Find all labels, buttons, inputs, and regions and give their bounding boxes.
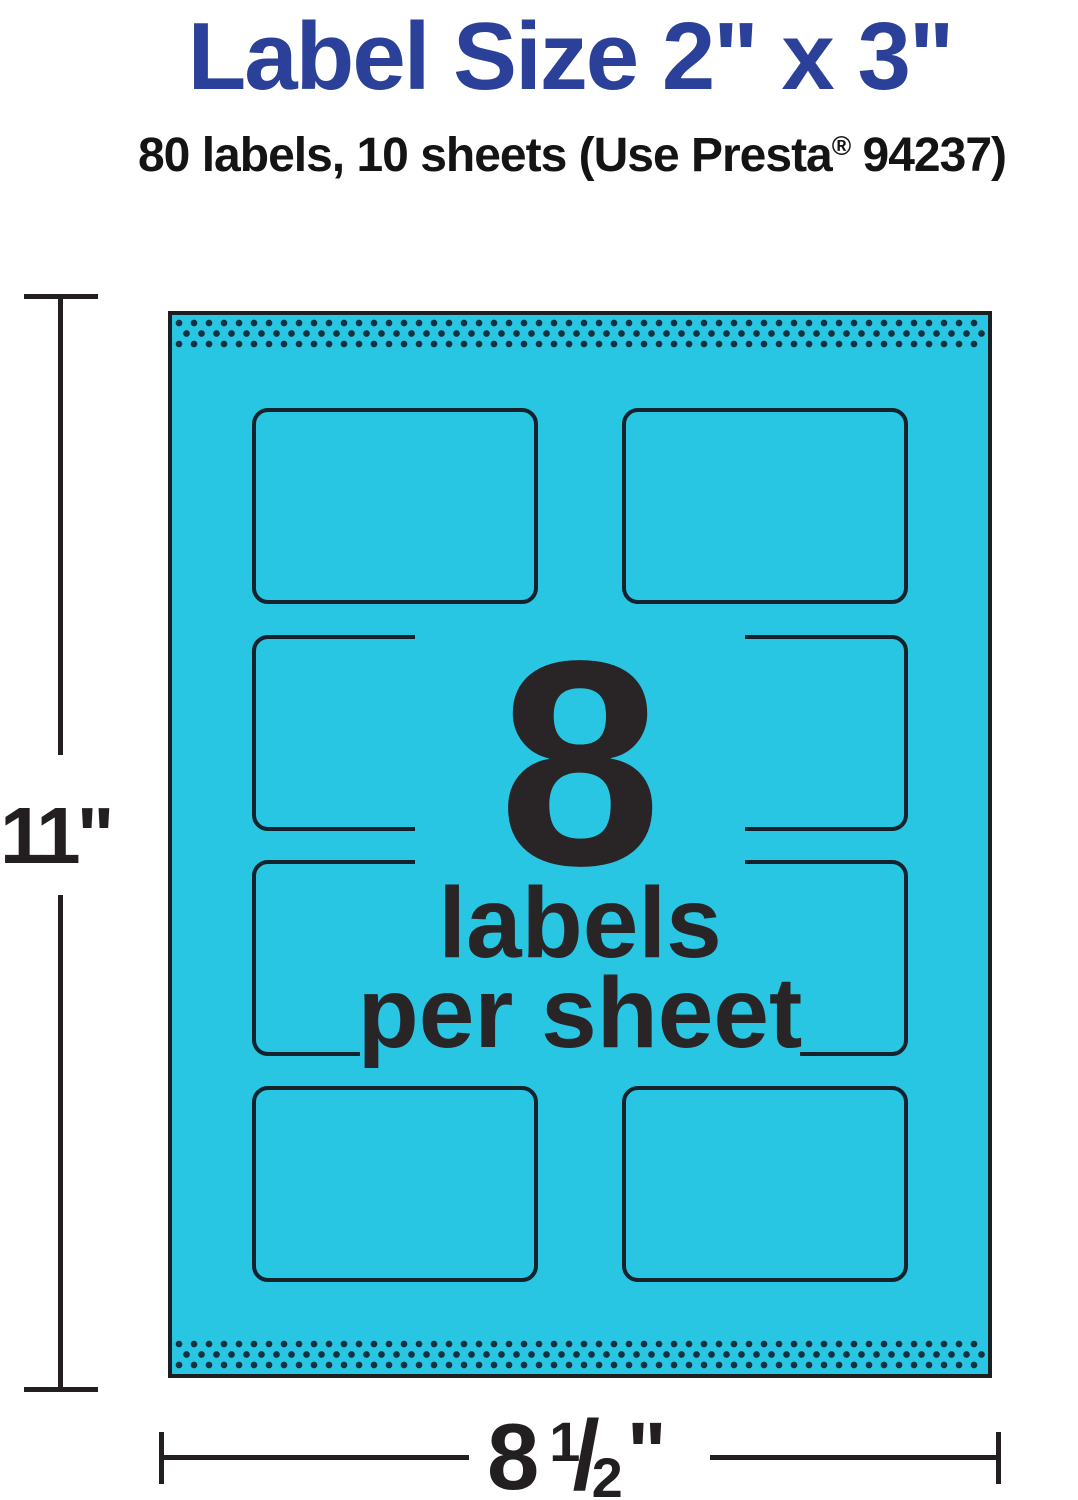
labels-per-sheet-callout: 8 labels per sheet (172, 315, 988, 1374)
per-sheet-words: per sheet (358, 963, 803, 1063)
registered-trademark-symbol: ® (832, 131, 850, 161)
fraction-denominator: 2 (592, 1450, 623, 1500)
subtitle: 80 labels, 10 sheets (Use Presta® 94237) (0, 128, 1078, 183)
width-dimension-line-right (710, 1455, 1000, 1460)
figure-canvas: Label Size 2" x 3" 80 labels, 10 sheets … (0, 0, 1078, 1500)
width-whole-number: 8 (487, 1412, 539, 1500)
height-dimension-line-lower (58, 895, 63, 1390)
page-title: Label Size 2" x 3" (0, 2, 1078, 112)
subtitle-text-pre: 80 labels, 10 sheets (Use Presta (138, 129, 832, 182)
height-dimension-line-upper (58, 296, 63, 755)
height-dimension-bottom-cap (24, 1387, 98, 1392)
width-fraction: 1 / 2 (549, 1412, 623, 1500)
width-dimension-line-left (161, 1455, 469, 1460)
labels-count: 8 (499, 617, 661, 909)
width-dimension-label: 8 1 / 2 " (487, 1412, 667, 1500)
subtitle-text-post: 94237) (850, 129, 1006, 182)
inch-mark: " (627, 1410, 667, 1494)
label-sheet: 8 labels per sheet (168, 311, 992, 1378)
height-dimension-label: 11" (0, 790, 111, 882)
width-dimension-right-tick (996, 1432, 1001, 1484)
